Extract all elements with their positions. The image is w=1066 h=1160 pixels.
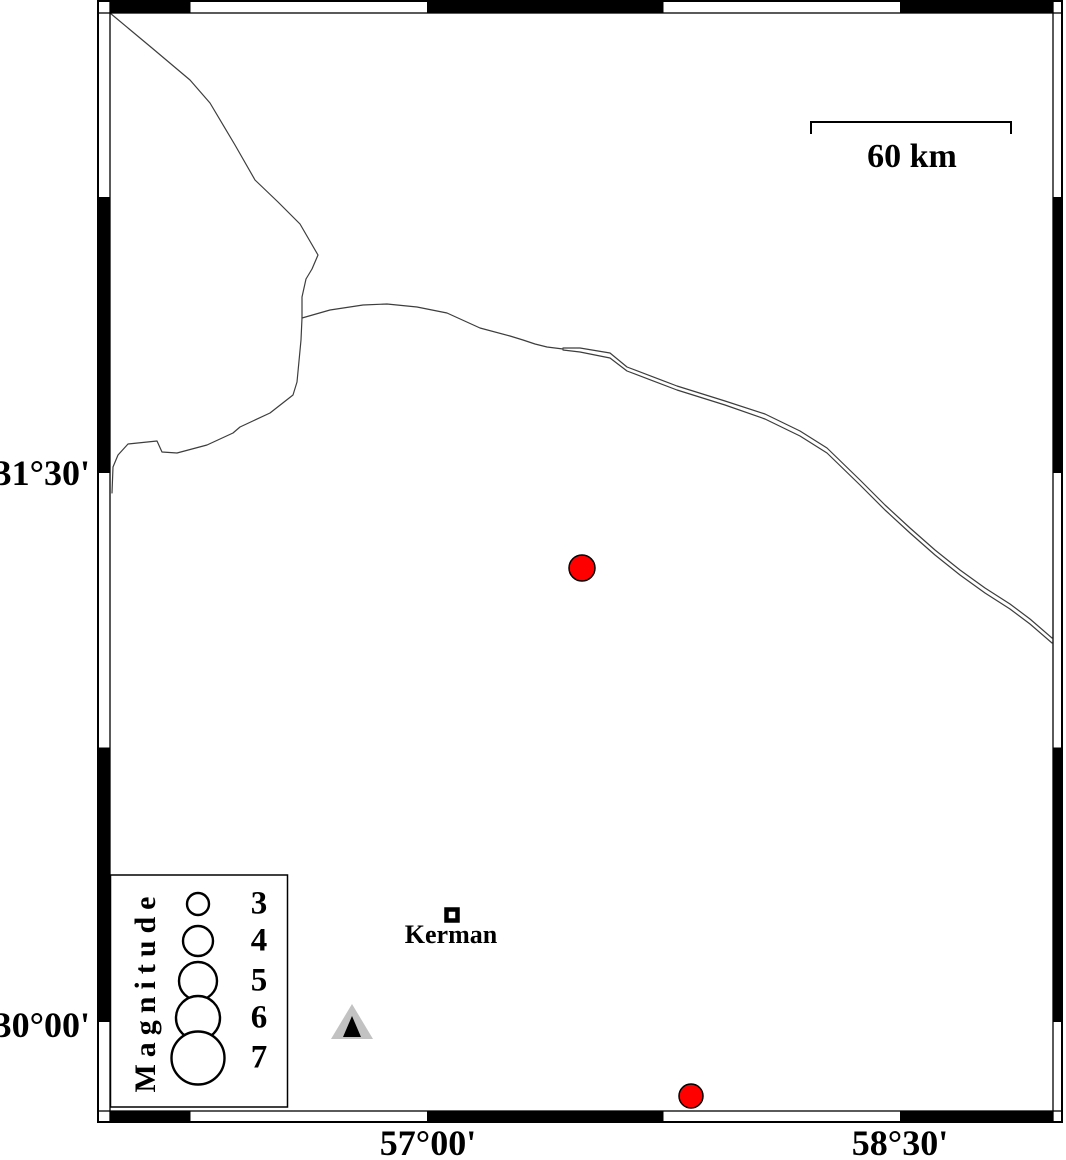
frame-black-segment-bottom [110,1111,191,1122]
frame-black-segment-top [900,1,1053,13]
legend-magnitude-circle [179,962,217,1000]
frame-black-segment-right [1053,748,1062,1023]
lat-label-30-00: 30°00' [0,1007,90,1043]
legend-magnitude-circle [172,1032,225,1085]
legend-magnitude-value: 6 [251,1002,268,1035]
frame-black-segment-bottom [427,1111,664,1122]
border-line-east-single [302,304,563,349]
scale-bar [811,122,1011,134]
city-square-icon [447,910,458,921]
boundary-lines [110,13,1052,643]
lat-label-31-30: 31°30' [0,455,90,491]
station-triangle-marker [331,1004,373,1039]
earthquake-markers [569,555,703,1108]
scale-bar-bracket [811,122,1011,134]
lon-label-57-00: 57°00' [380,1125,476,1160]
border-line-east-south [563,350,1052,643]
legend-magnitude-value: 5 [251,965,268,998]
border-line-east-north [563,348,1052,638]
scale-bar-label: 60 km [867,140,957,174]
legend-magnitude-value: 3 [251,888,268,921]
legend-title-magnitude: Magnitude [131,889,161,1092]
seismicity-map: 31°30' 30°00' 57°00' 58°30' 60 km Kerman… [0,0,1066,1160]
legend-magnitude-circle [187,893,209,915]
frame-black-segment-top [110,1,191,13]
city-label-kerman: Kerman [405,922,497,948]
lon-label-58-30: 58°30' [852,1125,948,1160]
legend-magnitude-value: 4 [251,925,268,958]
legend-magnitude-circle [183,926,213,956]
city-marker-kerman [447,910,458,921]
frame-black-segment-bottom [900,1111,1053,1122]
frame-black-segment-left [98,748,110,1023]
earthquake-epicenter-icon [679,1084,703,1108]
frame-black-segment-top [427,1,664,13]
border-line-northwest [110,13,318,493]
frame-black-segment-left [98,197,110,473]
frame-black-segment-right [1053,197,1062,473]
earthquake-epicenter-icon [569,555,595,581]
legend-magnitude-value: 7 [251,1042,268,1075]
